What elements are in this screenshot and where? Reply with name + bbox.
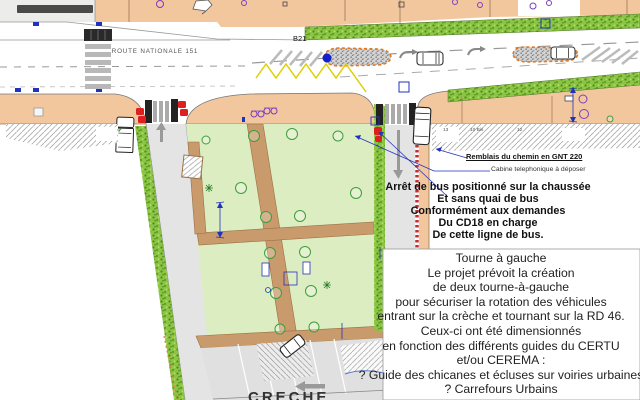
bus-note-line: Et sans quai de bus	[338, 193, 638, 205]
left-turn-note: Tourne à gauche Le projet prévoit la cré…	[342, 251, 640, 397]
turn-note-line: en fonction des différents guides du CER…	[342, 339, 640, 354]
site-plan-canvas: ROUTE NATIONALE 151 B21 Remblais du chem…	[0, 0, 640, 400]
building-footprint	[17, 5, 93, 13]
turn-note-line: pour sécuriser la rotation des véhicules	[342, 295, 640, 310]
car-icon	[551, 47, 575, 59]
bus-stop-note: Arrêt de bus positionné sur la chaussée …	[338, 181, 638, 241]
parcel-number: 10 Bis	[470, 128, 483, 133]
turn-note-line: et/ou CEREMA :	[342, 353, 640, 368]
turn-note-line: Le projet prévoit la création	[342, 266, 640, 281]
turn-note-line: Tourne à gauche	[342, 251, 640, 266]
bus-icon	[413, 107, 431, 145]
parcel-number: 12	[517, 128, 522, 133]
turn-note-line: Ceux-ci ont été dimensionnés	[342, 324, 640, 339]
cabine-annotation: Cabine telephonique à déposer	[491, 166, 585, 173]
parking-arrow	[305, 384, 325, 389]
car-icon	[417, 52, 443, 65]
parcel-number: 13	[443, 128, 448, 133]
turn-note-line: ? Carrefours Urbains	[342, 382, 640, 397]
embankment-hatch-right	[432, 124, 640, 151]
median-island-left	[324, 48, 391, 66]
turn-note-line: ? Guide des chicanes et écluses sur voir…	[342, 368, 640, 383]
bus-stop-code-label: B21	[293, 34, 306, 43]
road-name-label: ROUTE NATIONALE 151	[80, 48, 230, 55]
bus-stop-point-icon	[323, 54, 332, 63]
remblais-annotation: Remblais du chemin en GNT 220	[466, 152, 582, 161]
truck-icon	[116, 117, 134, 153]
works-hatch-rect	[182, 155, 203, 179]
bus-note-line: Conformément aux demandes	[338, 205, 638, 217]
turn-note-line: de deux tourne-à-gauche	[342, 280, 640, 295]
bus-note-line: Du CD18 en charge	[338, 217, 638, 229]
bus-note-line: Arrêt de bus positionné sur la chaussée	[338, 181, 638, 193]
turn-note-line: entrant sur la crèche et tournant sur la…	[342, 309, 640, 324]
creche-label: CRECHE	[248, 389, 329, 400]
bus-note-line: De cette ligne de bus.	[338, 229, 638, 241]
